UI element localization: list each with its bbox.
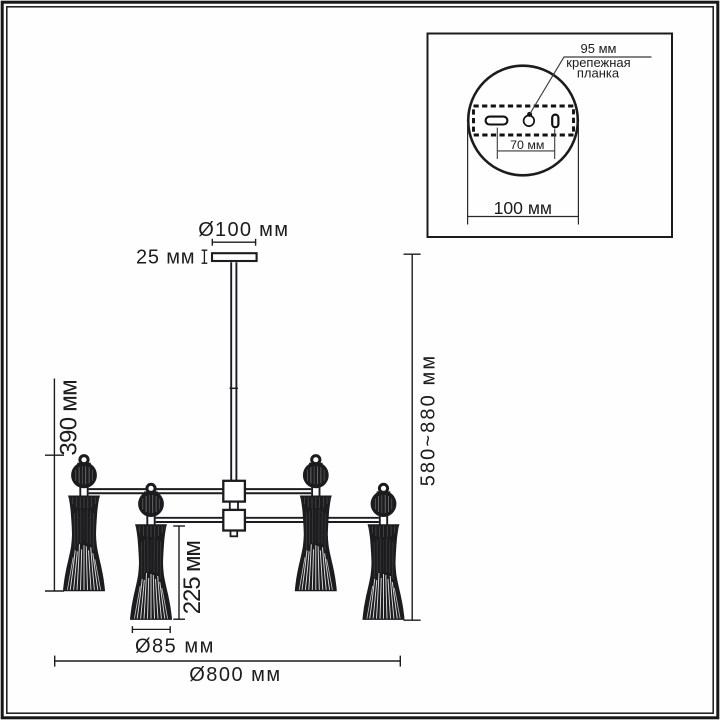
svg-text:Ø800 мм: Ø800 мм xyxy=(189,664,281,686)
svg-text:Ø85 мм: Ø85 мм xyxy=(135,635,215,657)
svg-text:95 мм: 95 мм xyxy=(581,41,617,56)
svg-text:Ø100 мм: Ø100 мм xyxy=(198,219,289,241)
svg-text:планка: планка xyxy=(577,65,620,80)
svg-text:100 мм: 100 мм xyxy=(494,198,552,218)
svg-text:70 мм: 70 мм xyxy=(510,138,544,152)
svg-text:25 мм: 25 мм xyxy=(136,247,195,269)
svg-text:225 мм: 225 мм xyxy=(179,541,206,614)
svg-text:580~880 мм: 580~880 мм xyxy=(417,354,439,486)
svg-text:390 мм: 390 мм xyxy=(55,380,82,456)
